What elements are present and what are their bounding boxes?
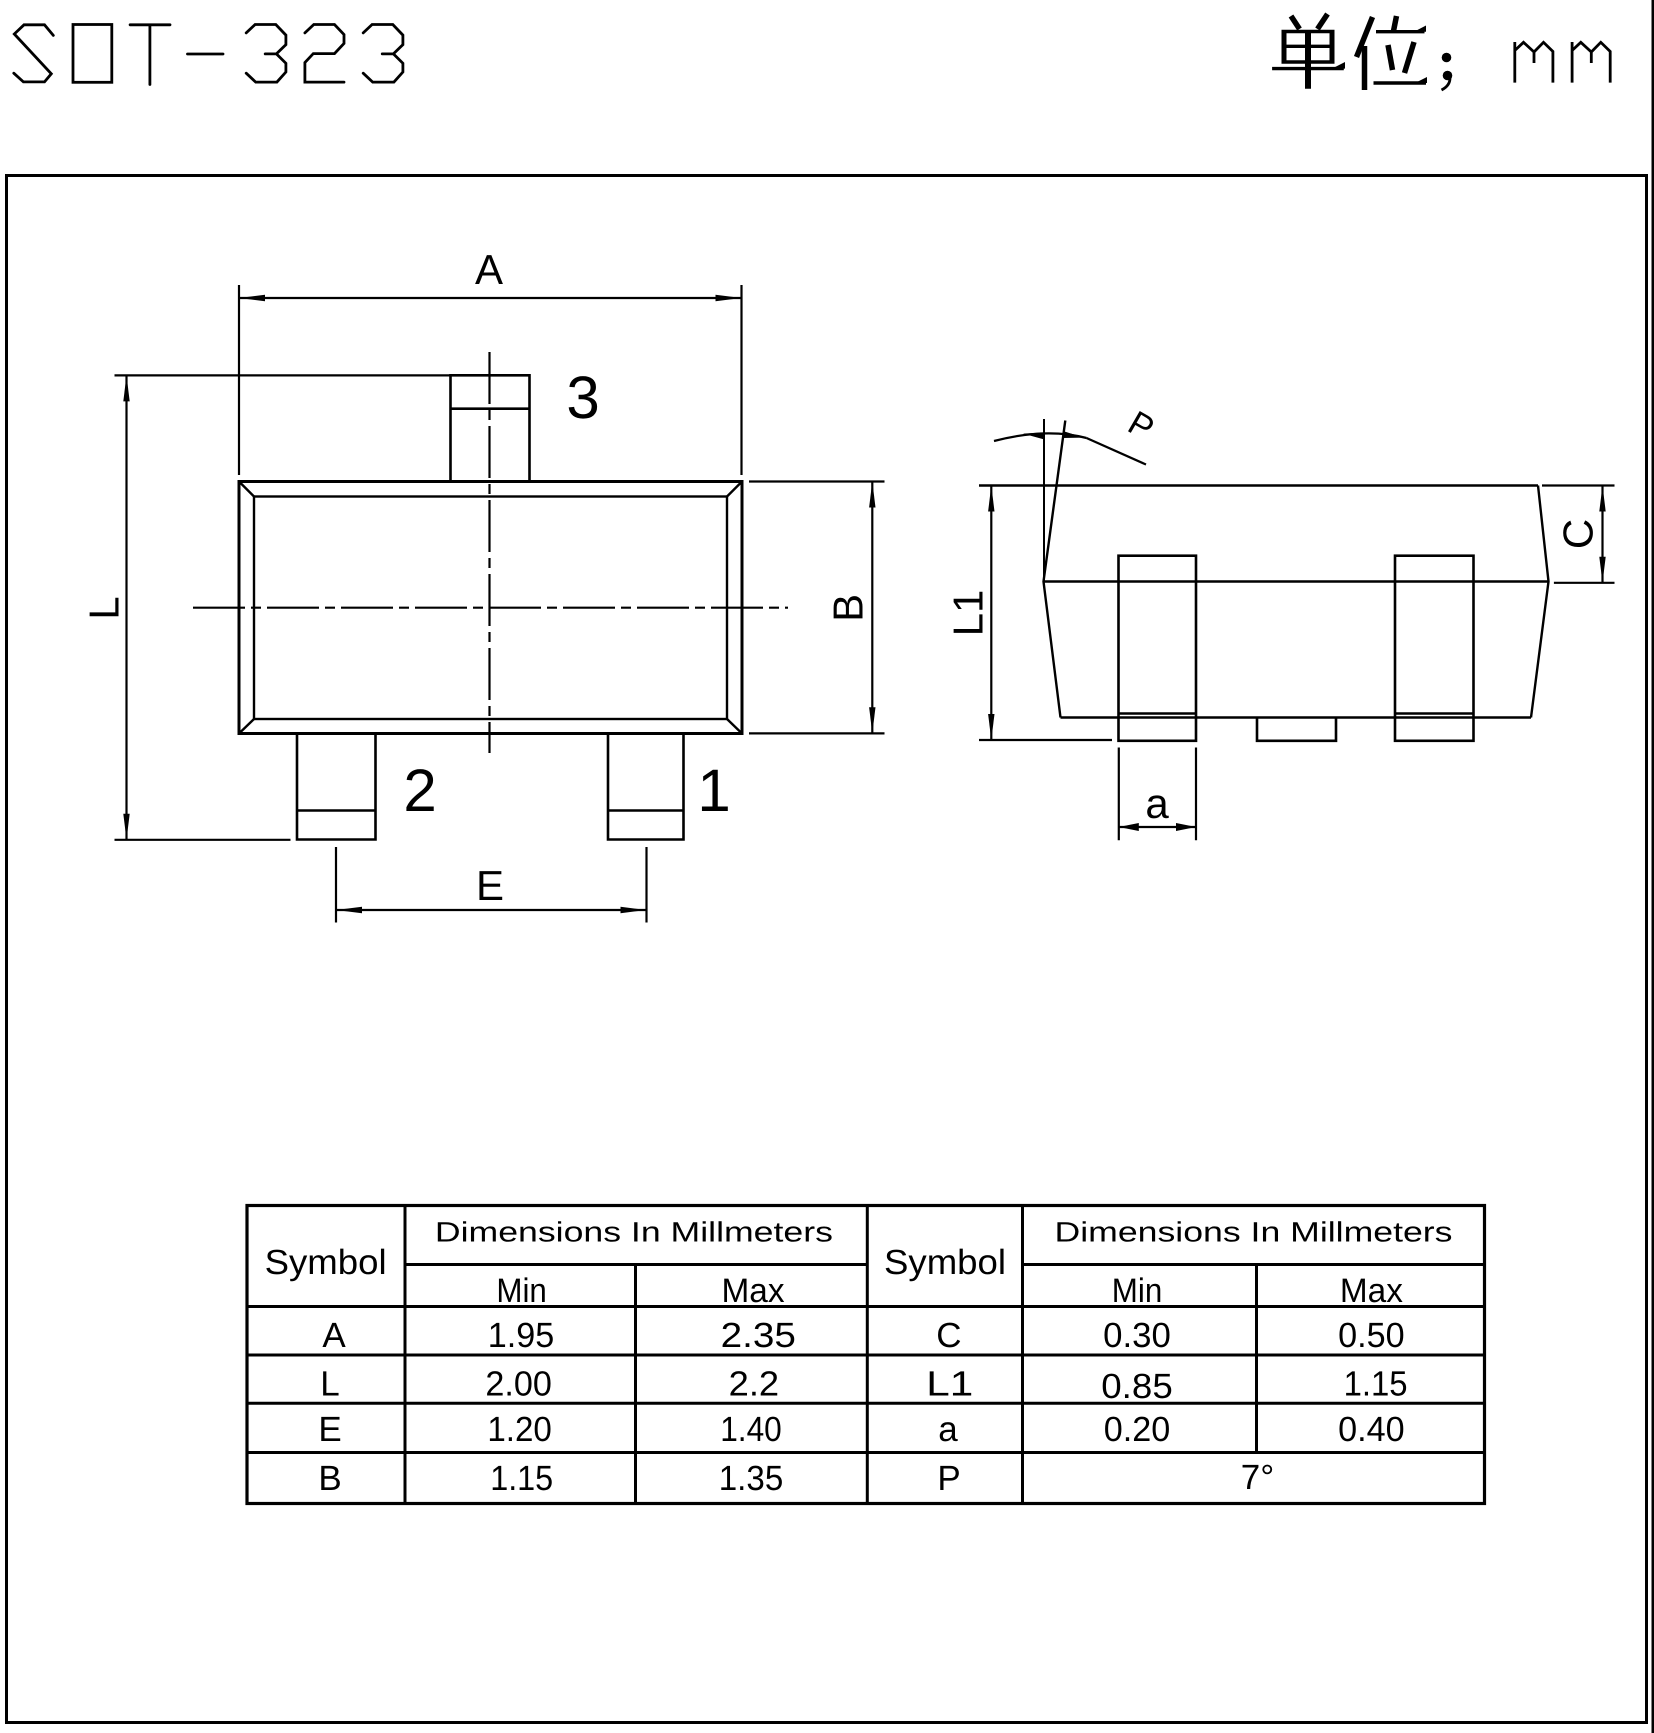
svg-text:1.15: 1.15 bbox=[490, 1459, 553, 1498]
svg-text:L1: L1 bbox=[945, 590, 992, 637]
svg-text:a: a bbox=[938, 1410, 958, 1449]
svg-text:A: A bbox=[322, 1316, 346, 1355]
svg-text:A: A bbox=[475, 246, 503, 293]
svg-text:7°: 7° bbox=[1241, 1458, 1274, 1497]
svg-text:1.15: 1.15 bbox=[1344, 1365, 1408, 1404]
svg-text:Dimensions In Millmeters: Dimensions In Millmeters bbox=[435, 1217, 833, 1248]
svg-text:a: a bbox=[1145, 780, 1169, 827]
svg-text:Dimensions In Millmeters: Dimensions In Millmeters bbox=[1055, 1217, 1453, 1248]
svg-text:Min: Min bbox=[1112, 1272, 1163, 1310]
svg-text:L: L bbox=[320, 1365, 339, 1404]
svg-text:B: B bbox=[318, 1459, 341, 1498]
svg-text:2.2: 2.2 bbox=[729, 1365, 780, 1404]
svg-text:1.95: 1.95 bbox=[488, 1316, 555, 1355]
svg-text:2.35: 2.35 bbox=[721, 1316, 796, 1355]
svg-text:Min: Min bbox=[496, 1272, 547, 1310]
svg-text:1.20: 1.20 bbox=[487, 1410, 552, 1449]
svg-text:E: E bbox=[318, 1410, 341, 1449]
svg-text:E: E bbox=[476, 862, 504, 909]
svg-text:Symbol: Symbol bbox=[265, 1243, 387, 1282]
svg-text:1.35: 1.35 bbox=[719, 1459, 784, 1498]
svg-text:0.40: 0.40 bbox=[1338, 1410, 1405, 1449]
svg-text:2.00: 2.00 bbox=[485, 1365, 552, 1404]
svg-text:0.50: 0.50 bbox=[1338, 1316, 1405, 1355]
svg-text:C: C bbox=[1555, 519, 1602, 549]
svg-text:L: L bbox=[81, 596, 128, 619]
svg-text:L1: L1 bbox=[926, 1365, 973, 1404]
svg-text:B: B bbox=[824, 594, 871, 622]
svg-text:0.85: 0.85 bbox=[1101, 1367, 1173, 1406]
svg-text:C: C bbox=[936, 1316, 961, 1355]
svg-text:3: 3 bbox=[566, 364, 599, 431]
svg-text:2: 2 bbox=[403, 757, 436, 824]
svg-text:P: P bbox=[937, 1459, 960, 1498]
svg-text:1: 1 bbox=[697, 757, 730, 824]
svg-text:0.30: 0.30 bbox=[1103, 1316, 1171, 1355]
svg-text:Max: Max bbox=[722, 1272, 785, 1310]
svg-text:1.40: 1.40 bbox=[720, 1410, 782, 1449]
svg-text:Max: Max bbox=[1340, 1272, 1403, 1310]
svg-text:0.20: 0.20 bbox=[1104, 1410, 1171, 1449]
svg-text:Symbol: Symbol bbox=[884, 1243, 1006, 1282]
